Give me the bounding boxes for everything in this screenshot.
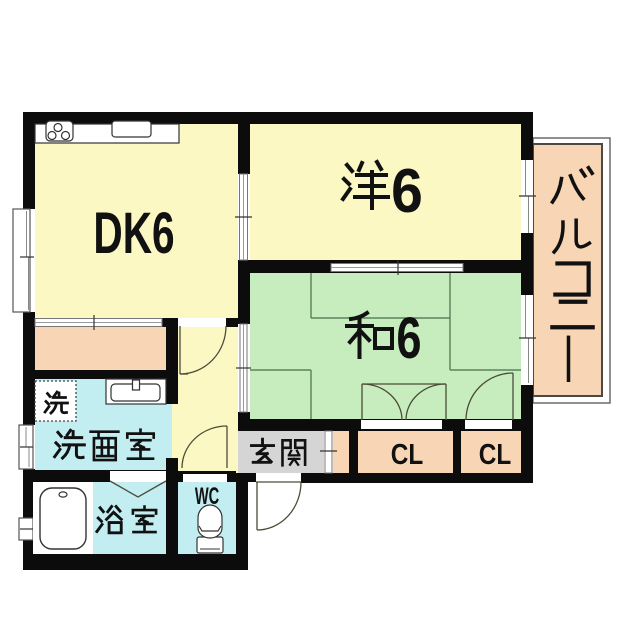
svg-text:6: 6 — [391, 156, 423, 226]
svg-text:WC: WC — [195, 483, 219, 510]
svg-text:DK6: DK6 — [93, 201, 174, 266]
svg-text:6: 6 — [396, 307, 421, 372]
svg-text:CL: CL — [479, 438, 511, 470]
svg-text:CL: CL — [391, 438, 423, 470]
